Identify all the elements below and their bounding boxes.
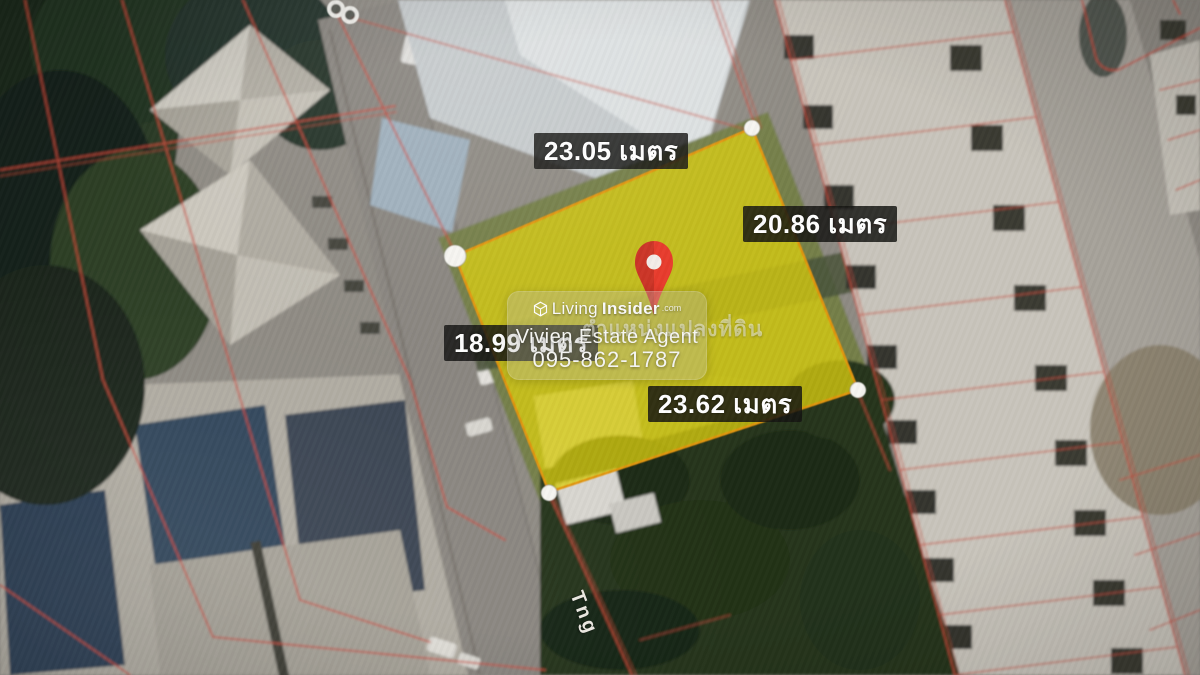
brand-tld: .com — [662, 299, 682, 318]
aerial-map-photo: 18.99 เมตร 23.05 เมตร 20.86 เมตร 23.62 เ… — [0, 0, 1200, 675]
measurement-label-bottom: 23.62 เมตร — [648, 386, 802, 422]
measurement-label-right: 20.86 เมตร — [743, 206, 897, 242]
agent-name: Vivien Estate Agent — [497, 326, 717, 349]
brand-logo-cube-icon — [533, 301, 548, 317]
agent-phone: 095-862-1787 — [497, 347, 717, 373]
measurement-label-top: 23.05 เมตร — [534, 133, 688, 169]
brand-name-light: Living — [552, 300, 598, 318]
brand-name-bold: Insider — [602, 300, 660, 318]
watermark-brand: LivingInsider.com — [507, 299, 707, 318]
